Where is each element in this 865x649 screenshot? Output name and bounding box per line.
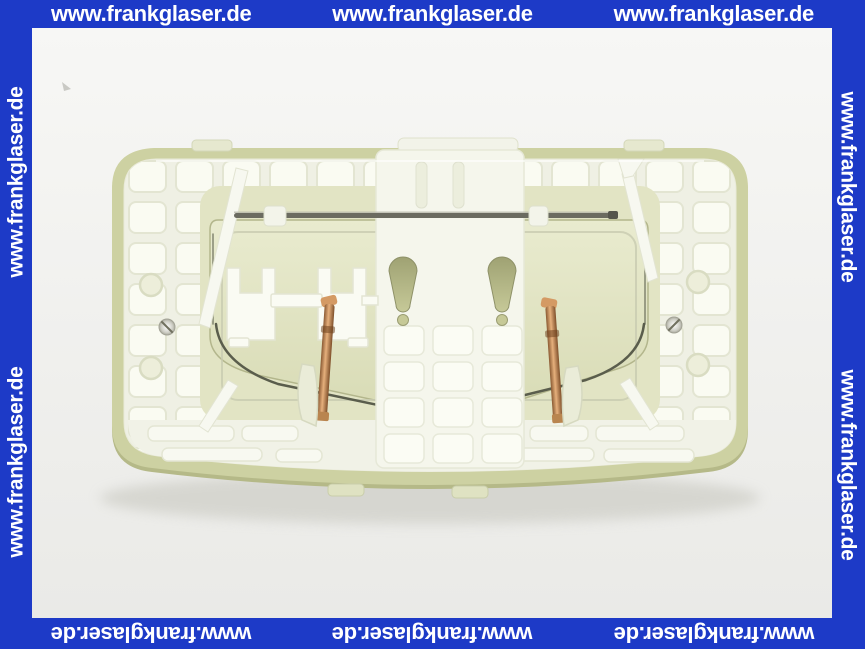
- latch-lever-right: [562, 366, 582, 426]
- watermark-text: www.frankglaser.de: [332, 623, 532, 645]
- watermark-bar-top: www.frankglaser.de www.frankglaser.de ww…: [0, 0, 865, 28]
- watermarked-product-photo-page: www.frankglaser.de www.frankglaser.de ww…: [0, 0, 865, 649]
- product-photo: [32, 28, 832, 618]
- keyhole-left-pilot-hole: [398, 315, 409, 326]
- watermark-text: www.frankglaser.de: [51, 623, 251, 645]
- watermark-text: www.frankglaser.de: [6, 86, 27, 277]
- watermark-text: www.frankglaser.de: [614, 623, 814, 645]
- watermark-bar-bottom: www.frankglaser.de www.frankglaser.de ww…: [0, 618, 865, 649]
- keyhole-right-pilot-hole: [497, 315, 508, 326]
- watermark-text: www.frankglaser.de: [838, 369, 859, 560]
- latch-lever-left: [298, 364, 318, 426]
- watermark-text: www.frankglaser.de: [614, 3, 814, 25]
- watermark-text: www.frankglaser.de: [838, 91, 859, 282]
- rod-clip-left: [264, 206, 286, 226]
- rod-clip-right: [529, 206, 548, 226]
- central-column: [376, 150, 524, 468]
- flush-plate: [112, 138, 748, 498]
- watermark-text: www.frankglaser.de: [6, 366, 27, 557]
- watermark-text: www.frankglaser.de: [332, 3, 532, 25]
- watermark-text: www.frankglaser.de: [51, 3, 251, 25]
